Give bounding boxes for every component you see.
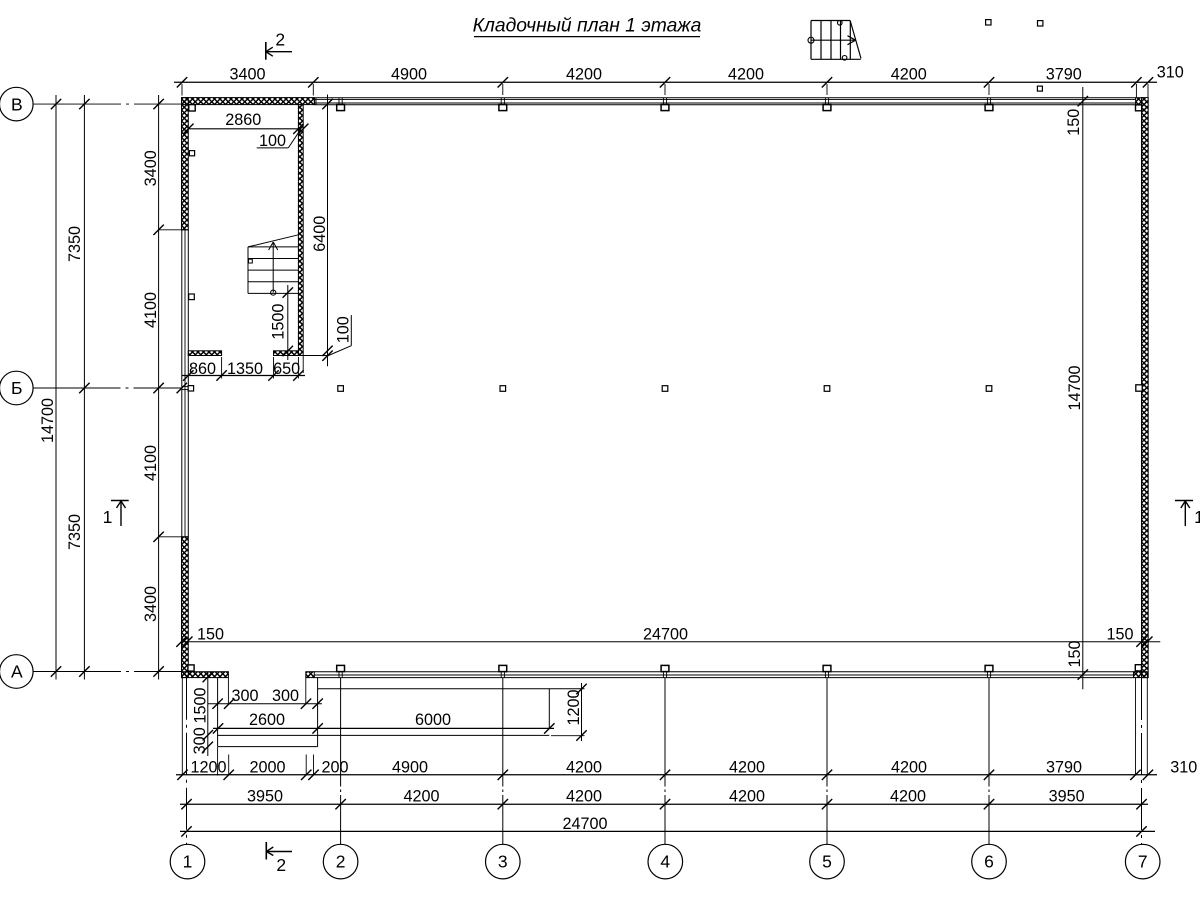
- svg-text:4100: 4100: [142, 292, 160, 328]
- svg-text:2860: 2860: [225, 111, 261, 129]
- svg-text:4200: 4200: [891, 65, 927, 83]
- svg-text:4200: 4200: [566, 759, 602, 777]
- svg-text:2600: 2600: [249, 711, 285, 729]
- svg-text:300: 300: [191, 727, 209, 754]
- svg-text:4200: 4200: [890, 788, 926, 806]
- svg-text:Б: Б: [11, 378, 22, 398]
- svg-text:1: 1: [103, 507, 113, 527]
- svg-text:3950: 3950: [1049, 788, 1085, 806]
- svg-text:3400: 3400: [142, 150, 160, 186]
- svg-text:1500: 1500: [192, 687, 210, 723]
- svg-text:4100: 4100: [142, 445, 160, 481]
- svg-text:24700: 24700: [562, 815, 607, 833]
- svg-text:2: 2: [276, 855, 286, 875]
- svg-text:2000: 2000: [249, 759, 285, 777]
- svg-text:4: 4: [660, 852, 670, 872]
- svg-text:14700: 14700: [39, 398, 57, 443]
- svg-text:1200: 1200: [190, 759, 226, 777]
- svg-text:860: 860: [189, 360, 216, 378]
- svg-text:4200: 4200: [566, 788, 602, 806]
- svg-text:1350: 1350: [227, 360, 263, 378]
- svg-text:5: 5: [822, 852, 832, 872]
- svg-text:310: 310: [1157, 64, 1184, 82]
- svg-text:4200: 4200: [891, 759, 927, 777]
- svg-text:1500: 1500: [269, 304, 287, 340]
- svg-text:4900: 4900: [391, 65, 427, 83]
- svg-text:6000: 6000: [415, 711, 451, 729]
- svg-text:150: 150: [197, 625, 224, 643]
- svg-text:3400: 3400: [229, 65, 265, 83]
- svg-text:7350: 7350: [66, 514, 84, 550]
- svg-text:150: 150: [1066, 640, 1084, 667]
- svg-text:150: 150: [1106, 625, 1133, 643]
- svg-text:В: В: [11, 94, 23, 114]
- svg-text:4200: 4200: [566, 65, 602, 83]
- svg-text:4200: 4200: [729, 759, 765, 777]
- svg-text:200: 200: [321, 759, 348, 777]
- svg-text:24700: 24700: [643, 625, 688, 643]
- svg-text:А: А: [11, 662, 23, 682]
- svg-text:6: 6: [984, 852, 994, 872]
- svg-text:650: 650: [273, 360, 300, 378]
- svg-text:3790: 3790: [1046, 65, 1082, 83]
- svg-text:7350: 7350: [66, 226, 84, 262]
- svg-text:4200: 4200: [728, 65, 764, 83]
- svg-text:6400: 6400: [311, 216, 329, 252]
- svg-text:4200: 4200: [403, 788, 439, 806]
- svg-text:1: 1: [1194, 507, 1200, 527]
- svg-text:4900: 4900: [392, 759, 428, 777]
- svg-text:310: 310: [1170, 759, 1197, 777]
- svg-text:7: 7: [1138, 852, 1148, 872]
- svg-text:Кладочный план 1 этажа: Кладочный план 1 этажа: [473, 16, 702, 37]
- svg-text:300: 300: [231, 687, 258, 705]
- svg-text:300: 300: [272, 687, 299, 705]
- svg-text:4200: 4200: [729, 788, 765, 806]
- svg-text:14700: 14700: [1066, 365, 1084, 410]
- svg-text:2: 2: [275, 29, 285, 49]
- svg-text:1: 1: [183, 852, 193, 872]
- svg-text:3950: 3950: [247, 788, 283, 806]
- svg-text:150: 150: [1065, 109, 1083, 136]
- svg-text:2: 2: [336, 852, 346, 872]
- svg-text:3: 3: [498, 852, 508, 872]
- svg-text:3400: 3400: [142, 586, 160, 622]
- svg-text:100: 100: [335, 316, 353, 343]
- svg-text:3790: 3790: [1046, 759, 1082, 777]
- svg-text:1200: 1200: [565, 689, 583, 725]
